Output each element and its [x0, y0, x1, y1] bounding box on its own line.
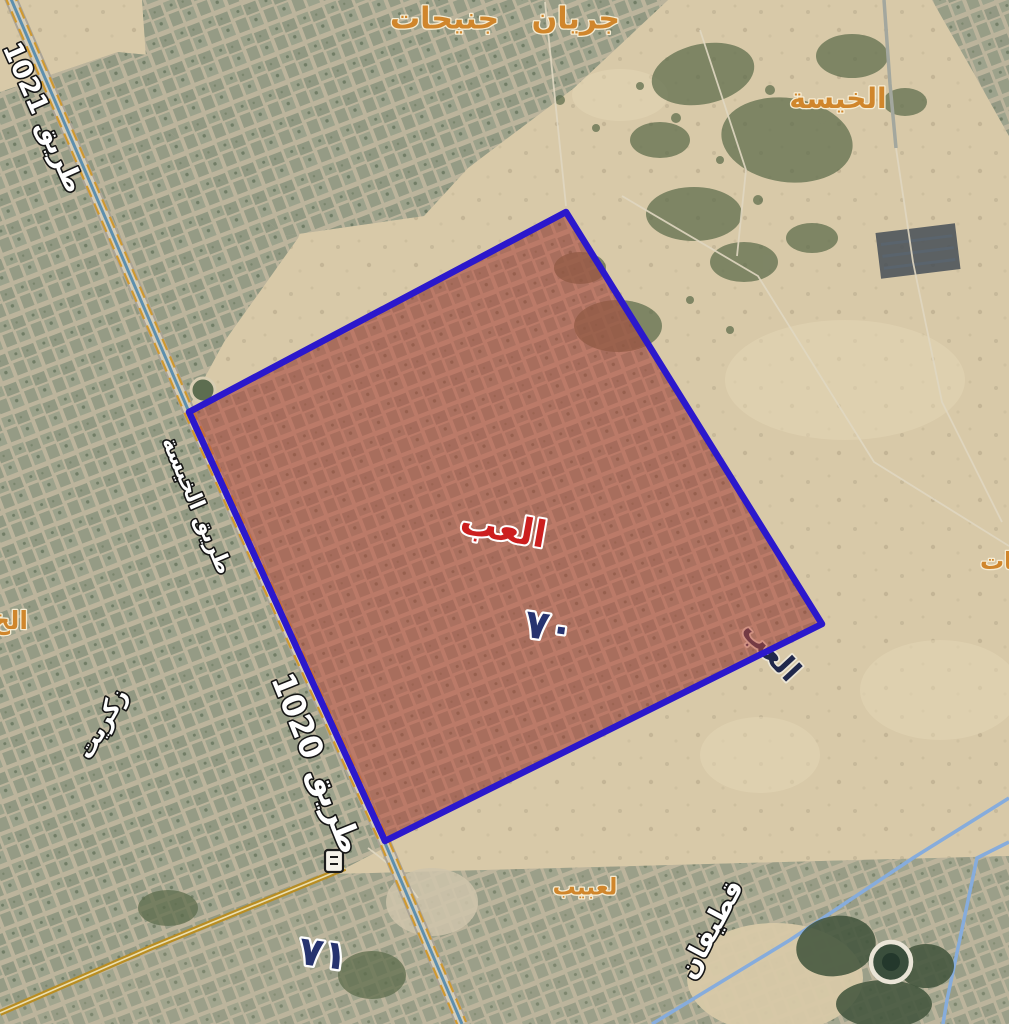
label-partial-right-edge: نات [980, 547, 1009, 575]
label-al-kheesa: الخيسة [789, 82, 886, 115]
label-jeryan-jenaihat: جريان جنيحات [390, 2, 620, 37]
solar-farm [875, 223, 960, 278]
map-satellite-canvas[interactable]: العب جريان جنيحات الخيسة الخ نات لعبيب ق… [0, 0, 1009, 1024]
zone-number-label: ٧٠ [522, 601, 577, 653]
label-leabaib: لعبيب [553, 875, 618, 901]
map-layers: العب جريان جنيحات الخيسة الخ نات لعبيب ق… [0, 0, 1009, 1024]
adjacent-zone-number-label: ٧١ [296, 928, 351, 980]
label-partial-left-edge: الخ [0, 606, 28, 636]
